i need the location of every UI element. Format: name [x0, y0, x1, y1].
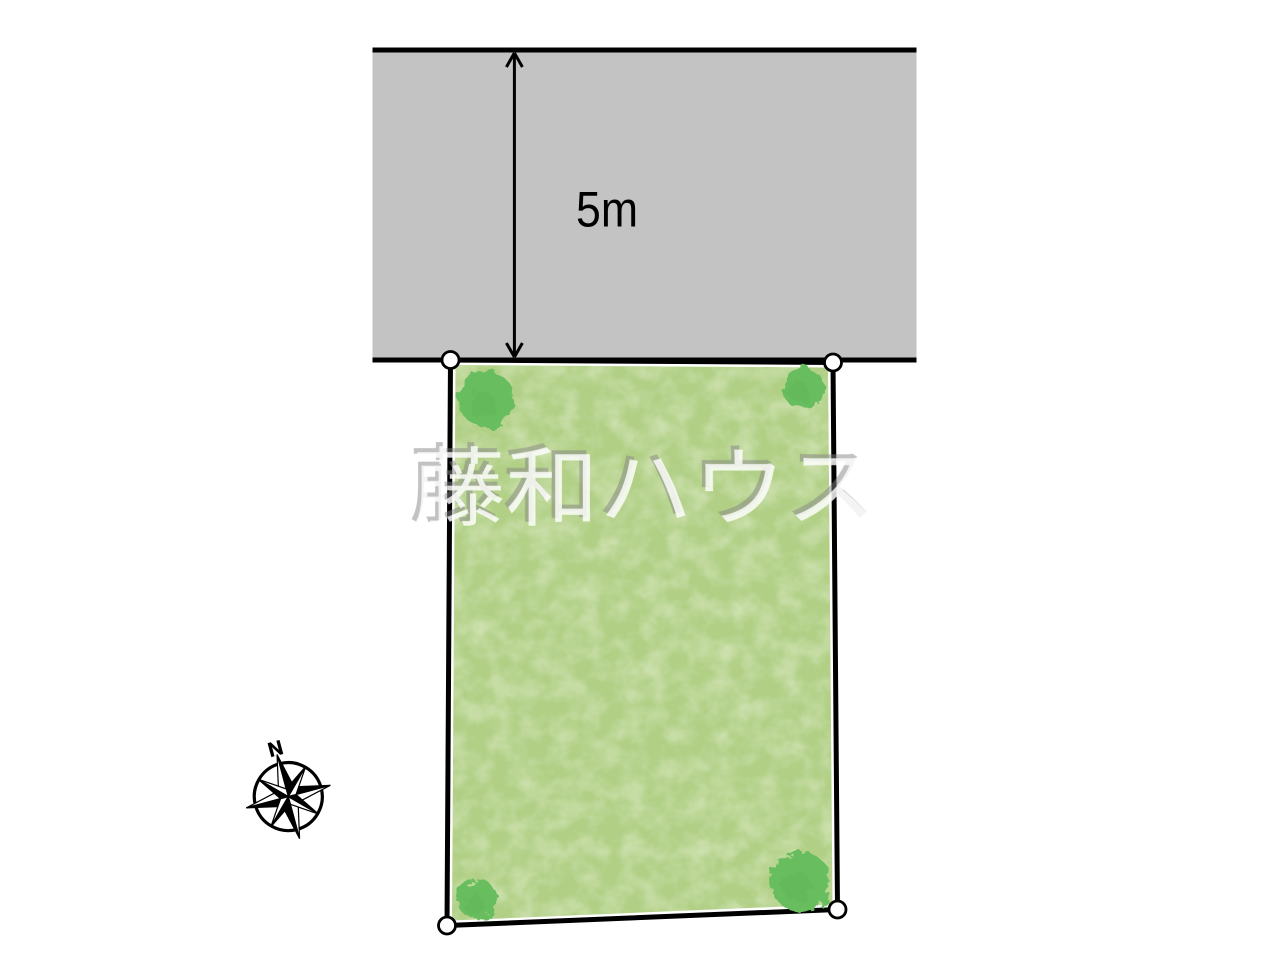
- svg-text:5m: 5m: [576, 182, 638, 238]
